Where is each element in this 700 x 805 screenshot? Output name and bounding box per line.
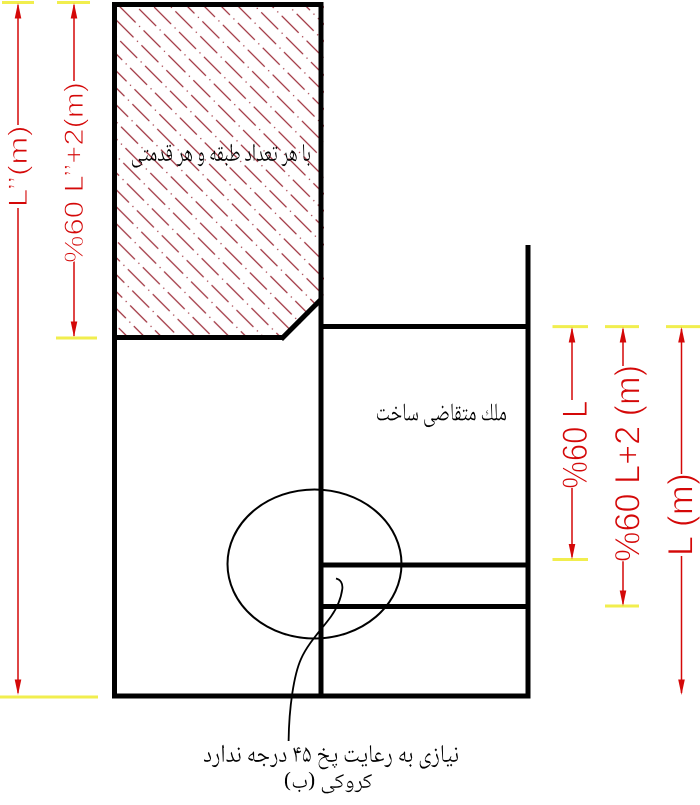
svg-text:L (m): L (m) <box>662 473 700 556</box>
svg-text:L’’(m): L’’(m) <box>3 125 33 207</box>
svg-text:%60 L+2 (m): %60 L+2 (m) <box>609 365 648 562</box>
svg-text:%60 L: %60 L <box>556 401 595 489</box>
svg-text:%60 L’’+2(m): %60 L’’+2(m) <box>59 82 89 263</box>
